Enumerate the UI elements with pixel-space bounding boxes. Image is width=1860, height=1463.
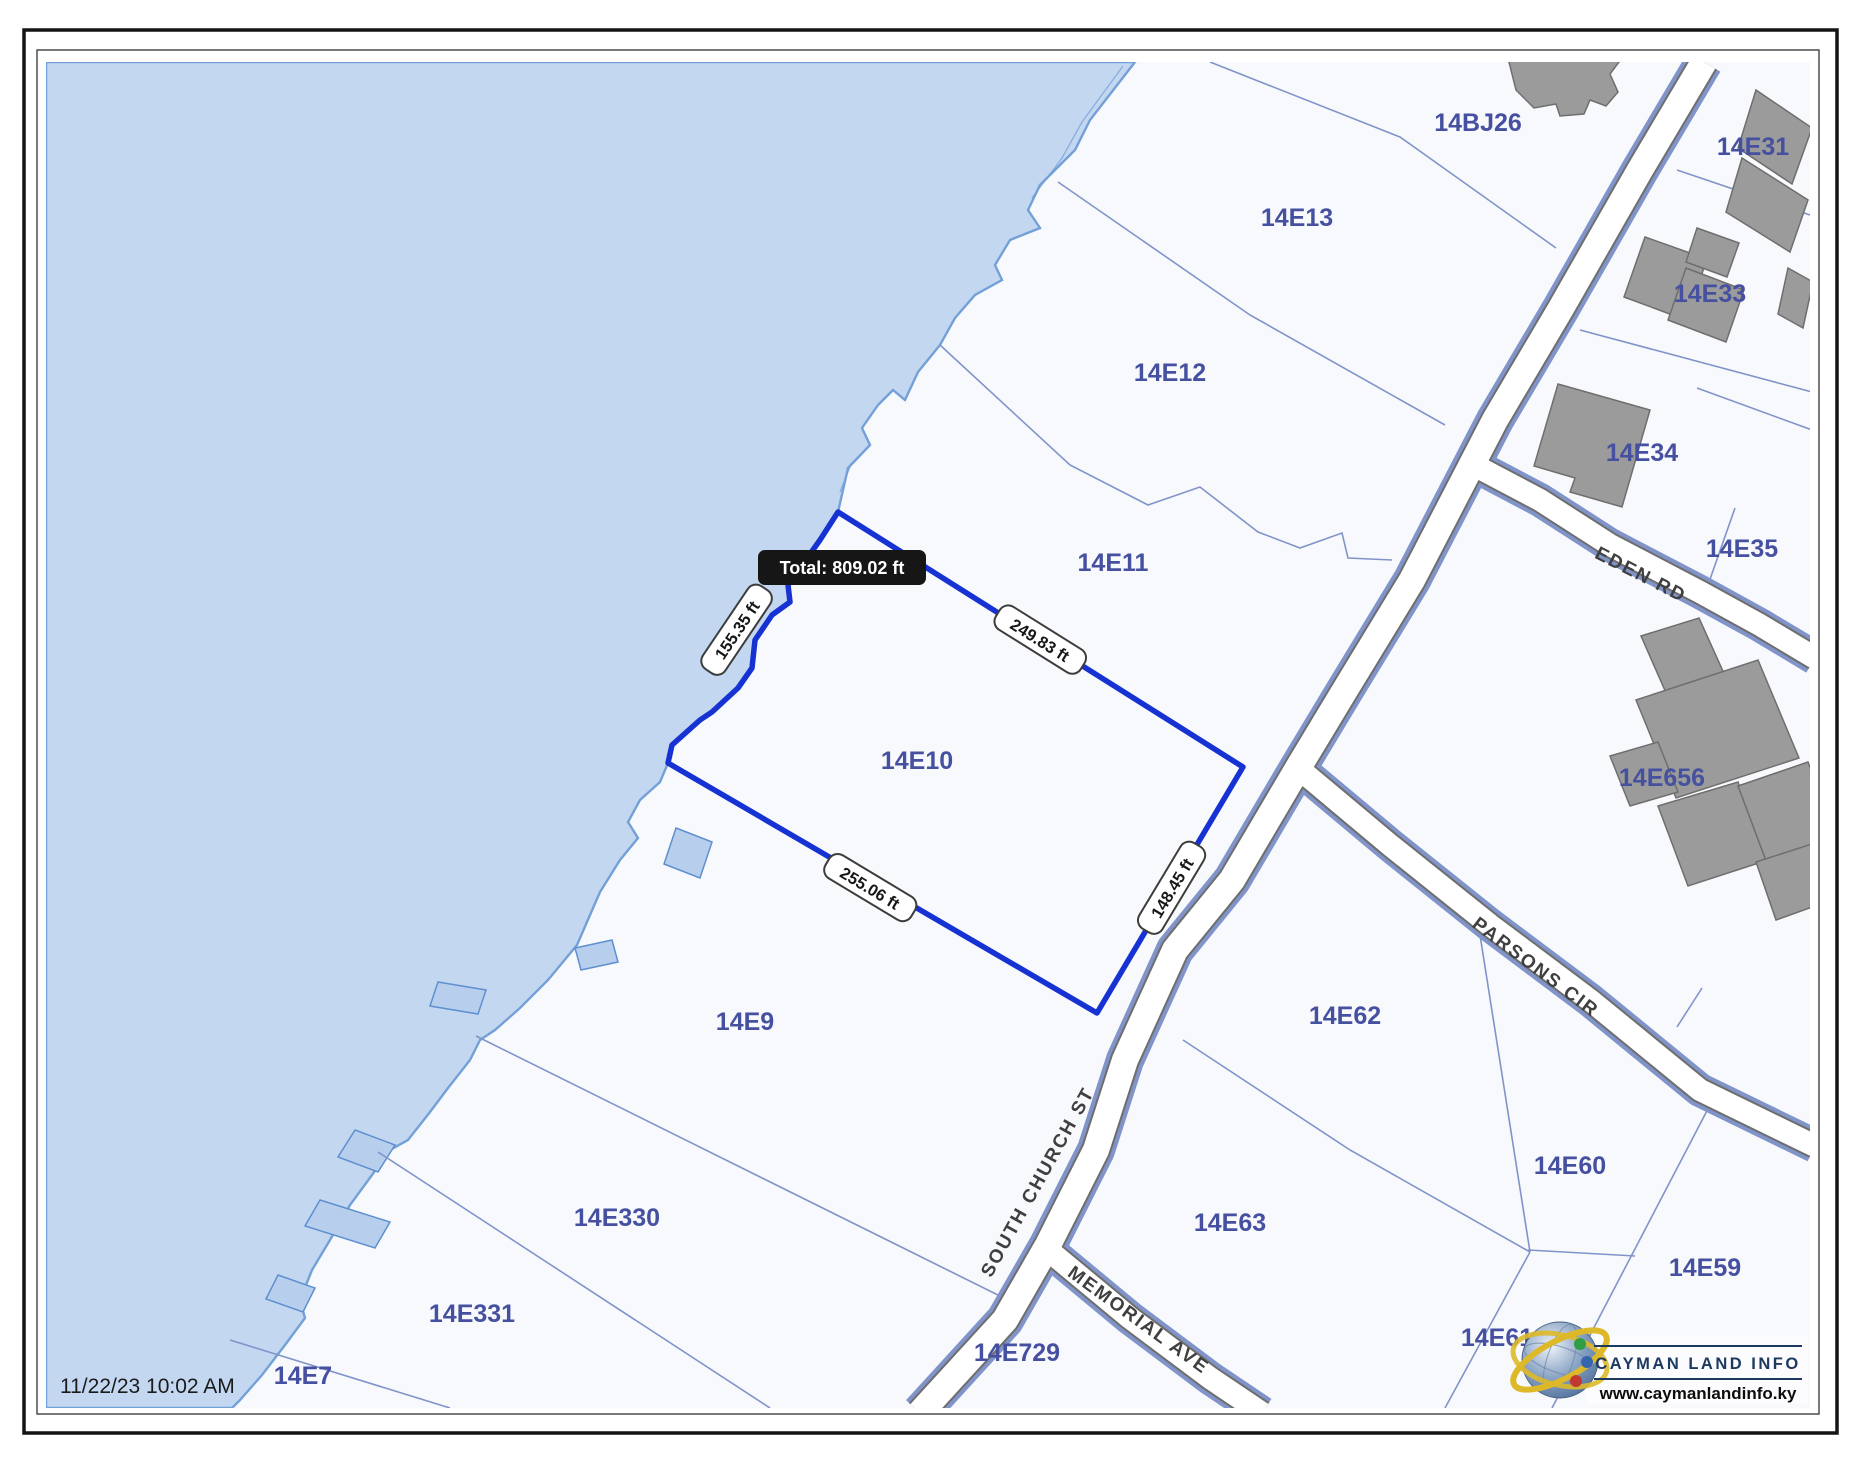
timestamp: 11/22/23 10:02 AM — [60, 1375, 235, 1398]
parcel-label-14E10: 14E10 — [881, 747, 953, 775]
parcel-label-14E31: 14E31 — [1717, 133, 1789, 161]
parcel-label-14E729: 14E729 — [974, 1339, 1060, 1367]
parcel-label-14E656: 14E656 — [1619, 764, 1705, 792]
parcel-label-14BJ26: 14BJ26 — [1434, 109, 1522, 137]
parcel-label-14E330: 14E330 — [574, 1204, 660, 1232]
parcel-label-14E9: 14E9 — [716, 1008, 774, 1036]
parcel-label-14E331: 14E331 — [429, 1300, 515, 1328]
parcel-label-14E60: 14E60 — [1534, 1152, 1606, 1180]
parcel-label-14E63: 14E63 — [1194, 1209, 1266, 1237]
svg-text:Total: 809.02 ft: Total: 809.02 ft — [780, 558, 905, 578]
parcel-label-14E33: 14E33 — [1674, 280, 1746, 308]
parcel-label-14E62: 14E62 — [1309, 1002, 1381, 1030]
parcel-label-14E35: 14E35 — [1706, 535, 1778, 563]
parcel-label-14E12: 14E12 — [1134, 359, 1206, 387]
logo-title: CAYMAN LAND INFO — [1595, 1355, 1800, 1373]
parcel-label-14E11: 14E11 — [1078, 549, 1149, 577]
parcel-label-14E59: 14E59 — [1669, 1254, 1741, 1282]
parcel-label-14E7: 14E7 — [274, 1362, 332, 1390]
parcel-label-14E13: 14E13 — [1261, 204, 1333, 232]
parcel-label-14E34: 14E34 — [1606, 439, 1678, 467]
logo-url: www.caymanlandinfo.ky — [1599, 1384, 1797, 1403]
measurement-total-tooltip: Total: 809.02 ft — [758, 550, 926, 585]
map-print-page: 14BJ26 14E13 14E31 14E12 14E33 14E34 14E… — [0, 0, 1860, 1463]
map-canvas[interactable]: 14BJ26 14E13 14E31 14E12 14E33 14E34 14E… — [0, 0, 1860, 1463]
